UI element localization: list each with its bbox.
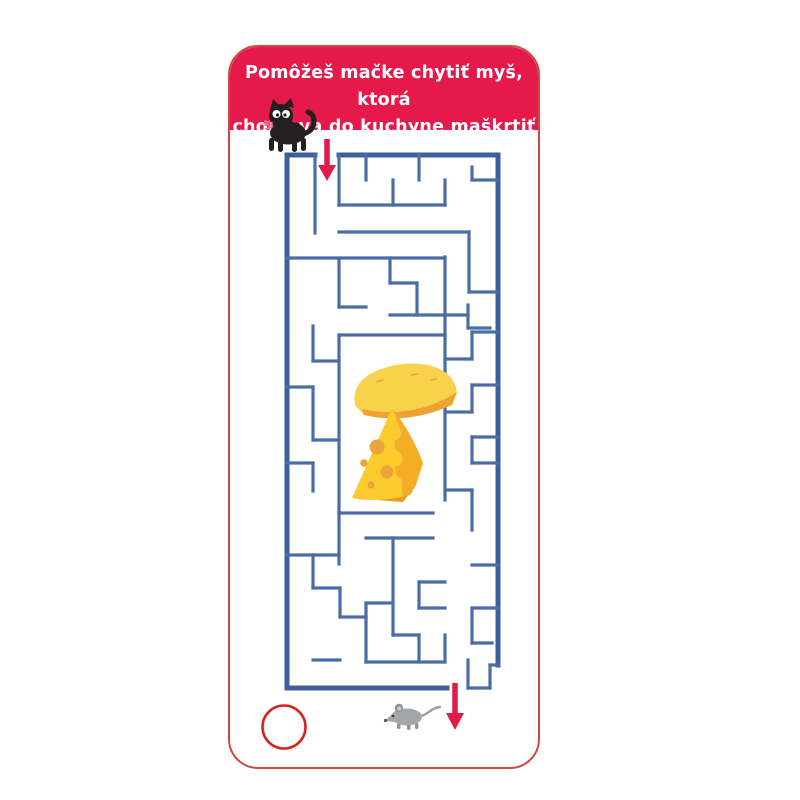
- mouse-icon: [384, 704, 440, 730]
- cat-icon: [263, 98, 314, 152]
- cheese-wheel-icon: [354, 363, 457, 418]
- cheese-wedge-icon: [352, 408, 423, 502]
- activity-page: Pomôžeš mačke chytiť myš, ktorá chodieva…: [0, 0, 800, 800]
- answer-circle: [263, 706, 306, 749]
- start-arrow-icon: [318, 139, 336, 181]
- puzzle-scene: [0, 0, 800, 800]
